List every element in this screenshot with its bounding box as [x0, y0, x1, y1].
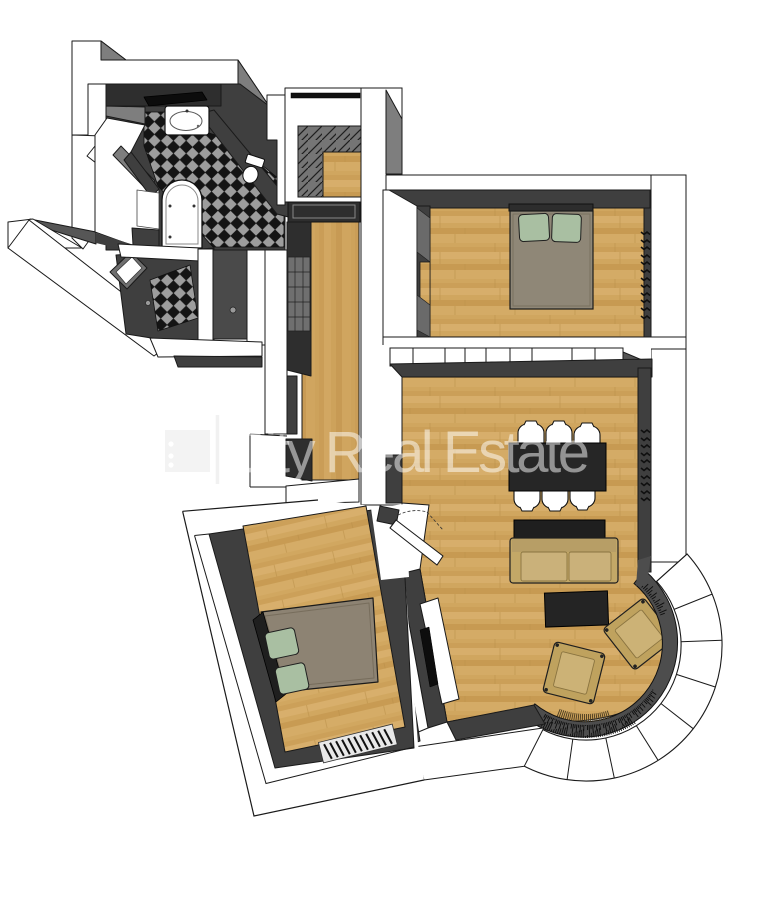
svg-text:City Real Estate: City Real Estate: [226, 420, 590, 485]
